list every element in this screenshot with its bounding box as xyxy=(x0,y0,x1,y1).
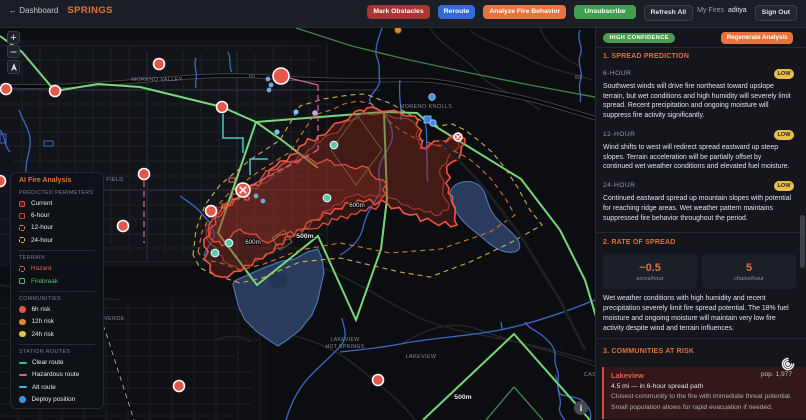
svg-text:MORENO VALLEY: MORENO VALLEY xyxy=(131,77,182,83)
svg-text:LAKEVIEW: LAKEVIEW xyxy=(406,354,437,360)
svg-text:60: 60 xyxy=(575,75,581,81)
svg-text:500m: 500m xyxy=(296,233,313,240)
svg-text:MORENO KNOLLS: MORENO KNOLLS xyxy=(400,104,453,110)
svg-text:500m: 500m xyxy=(454,394,471,401)
svg-text:CAS: CAS xyxy=(584,372,595,378)
svg-text:LAKEVIEW: LAKEVIEW xyxy=(331,337,360,343)
svg-text:600m: 600m xyxy=(245,239,260,246)
svg-text:HOT SPRINGS: HOT SPRINGS xyxy=(326,344,365,350)
svg-text:600m: 600m xyxy=(349,202,364,209)
svg-text:60: 60 xyxy=(249,74,255,80)
